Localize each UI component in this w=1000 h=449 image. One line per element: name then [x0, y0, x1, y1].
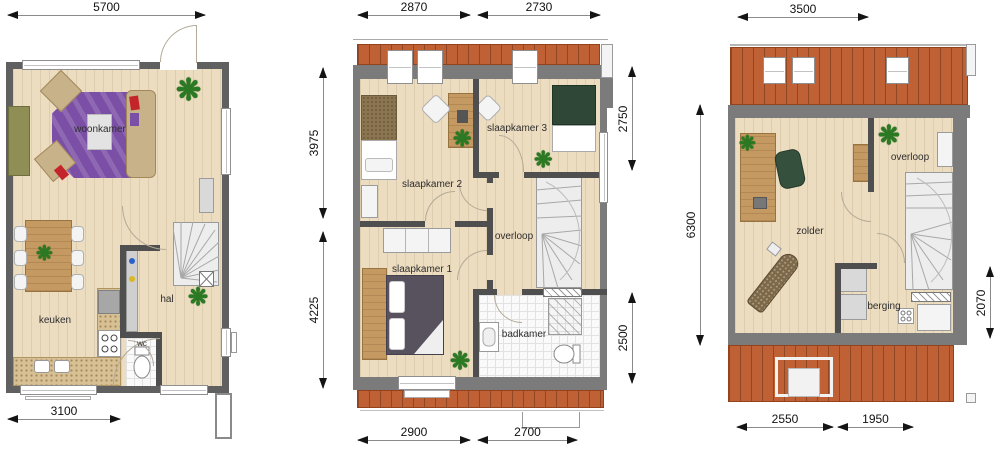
dimension-width-top: 3500 — [738, 17, 868, 18]
skylight — [792, 57, 815, 84]
exterior-wall-top — [728, 105, 970, 118]
dimension-value: 1950 — [838, 413, 913, 425]
room-label-landing: overloop — [880, 152, 940, 163]
radiator — [911, 292, 951, 302]
dimension-bottom-right: 1950 — [838, 427, 913, 428]
arrowhead-icon — [837, 423, 848, 431]
plan-attic: ❋ ❋ — [0, 0, 1000, 449]
room-label-attic: zolder — [780, 226, 840, 237]
plant-icon: ❋ — [739, 134, 756, 154]
arrowhead-icon — [696, 104, 704, 115]
floorplan-canvas: ❋ ❋ — [0, 0, 1000, 449]
cabinet — [917, 304, 951, 331]
arrowhead-icon — [737, 13, 748, 21]
dimension-height-left: 6300 — [700, 105, 701, 345]
arrowhead-icon — [823, 423, 834, 431]
arrowhead-icon — [903, 423, 914, 431]
arrowhead-icon — [986, 328, 994, 339]
dimension-value: 2550 — [737, 413, 833, 425]
dormer-window — [788, 368, 820, 397]
arrowhead-icon — [858, 13, 869, 21]
room-label-storage: berging — [854, 301, 914, 312]
dimension-value: 3500 — [738, 3, 868, 15]
staircase — [905, 172, 953, 290]
roof-edge-tab — [966, 393, 976, 403]
skylight — [886, 57, 909, 84]
roof-bottom — [728, 345, 954, 402]
arrowhead-icon — [736, 423, 747, 431]
exterior-wall-left — [728, 105, 735, 345]
interior-wall — [868, 118, 874, 192]
interior-wall — [835, 263, 877, 269]
exterior-wall-right — [953, 105, 967, 345]
arrowhead-icon — [696, 335, 704, 346]
dimension-height-right: 2070 — [990, 267, 991, 338]
printer — [753, 197, 767, 209]
washing-machine — [840, 266, 867, 292]
dimension-value: 6300 — [685, 212, 697, 239]
dimension-bottom-left: 2550 — [737, 427, 833, 428]
plant-icon: ❋ — [878, 122, 900, 148]
exterior-wall-bottom — [728, 333, 967, 345]
skylight — [763, 57, 786, 84]
roof-edge-tab — [966, 44, 976, 76]
dimension-value: 2070 — [975, 289, 987, 316]
arrowhead-icon — [986, 266, 994, 277]
interior-wall — [835, 263, 841, 333]
gutter-line — [730, 44, 968, 46]
